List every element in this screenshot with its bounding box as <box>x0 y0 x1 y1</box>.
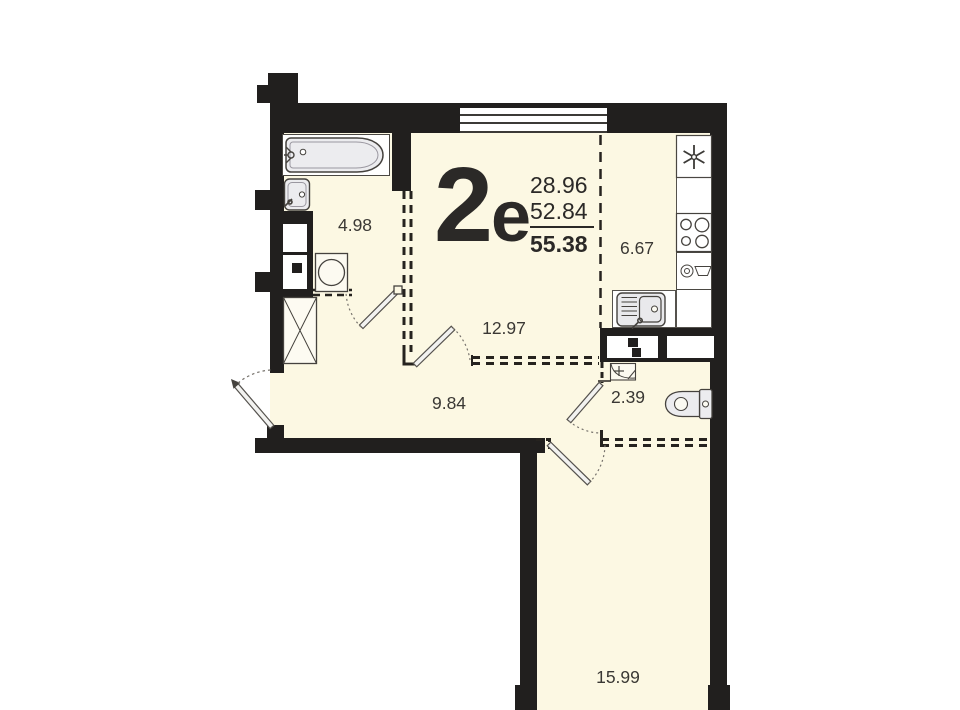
unit-area-total: 55.38 <box>530 228 594 257</box>
unit-number: 2 <box>434 152 491 258</box>
room-area-living: 12.97 <box>474 318 534 339</box>
corner-sink-icon <box>611 364 636 381</box>
unit-label: 2е <box>434 152 531 258</box>
room-area-kitchen: 6.67 <box>607 238 667 259</box>
entrance-door <box>231 370 274 429</box>
small-appliance-icon <box>677 253 712 290</box>
partition-wc-left <box>598 362 611 383</box>
partition-bathroom-vertical <box>404 191 419 364</box>
room-area-hall: 9.84 <box>419 393 479 414</box>
bathtub-icon <box>283 135 390 176</box>
living-room-door <box>413 326 470 367</box>
plan-vector-layer <box>0 0 960 710</box>
toilet-icon <box>666 390 713 419</box>
floor-plan: 2е 28.96 52.84 55.38 4.98 6.67 12.97 9.8… <box>0 0 960 710</box>
bathroom-door <box>346 286 402 329</box>
partition-hall-living <box>472 355 599 366</box>
unit-areas: 28.96 52.84 55.38 <box>530 172 594 257</box>
kitchen-sink-icon <box>617 293 665 329</box>
bathroom-sink-icon <box>285 179 310 210</box>
fridge-icon <box>677 136 712 178</box>
unit-type-letter: е <box>491 181 531 253</box>
room-area-wc: 2.39 <box>598 387 658 408</box>
shaft-x-icon <box>284 298 317 364</box>
unit-area-extra: 52.84 <box>530 198 594 228</box>
washing-machine-icon <box>316 254 348 292</box>
bottom-room-door <box>547 442 605 485</box>
unit-area-living: 28.96 <box>530 172 594 198</box>
stove-icon <box>677 214 712 252</box>
room-area-bathroom: 4.98 <box>325 215 385 236</box>
partition-room-top <box>536 430 712 450</box>
room-area-room: 15.99 <box>588 667 648 688</box>
